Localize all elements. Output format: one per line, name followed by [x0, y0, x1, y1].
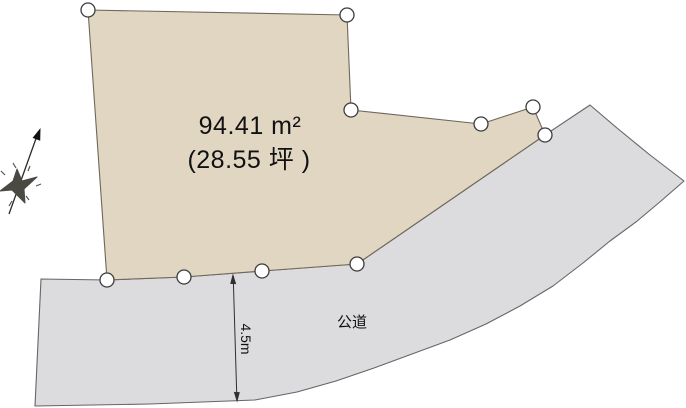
- land-plot-diagram: 94.41 m² (28.55 坪 ) 公道 4.5m: [0, 0, 686, 408]
- survey-point: [474, 117, 488, 131]
- survey-point: [538, 128, 552, 142]
- survey-point: [100, 273, 114, 287]
- plot-drawing-canvas: 94.41 m² (28.55 坪 ) 公道 4.5m: [0, 0, 686, 408]
- north-arrow-head: [33, 128, 41, 141]
- survey-point: [255, 264, 269, 278]
- north-arrow-icon: [0, 128, 41, 214]
- survey-point: [526, 100, 540, 114]
- compass-star: [0, 169, 37, 203]
- survey-point: [340, 8, 354, 22]
- dimension-label: 4.5m: [238, 323, 254, 354]
- road-label: 公道: [337, 314, 367, 331]
- survey-point: [81, 3, 95, 17]
- survey-point: [350, 257, 364, 271]
- survey-point: [344, 103, 358, 117]
- parcel-area-tsubo-label: (28.55 坪 ): [187, 146, 310, 174]
- parcel-area-sqm-label: 94.41 m²: [199, 112, 302, 140]
- survey-point: [177, 270, 191, 284]
